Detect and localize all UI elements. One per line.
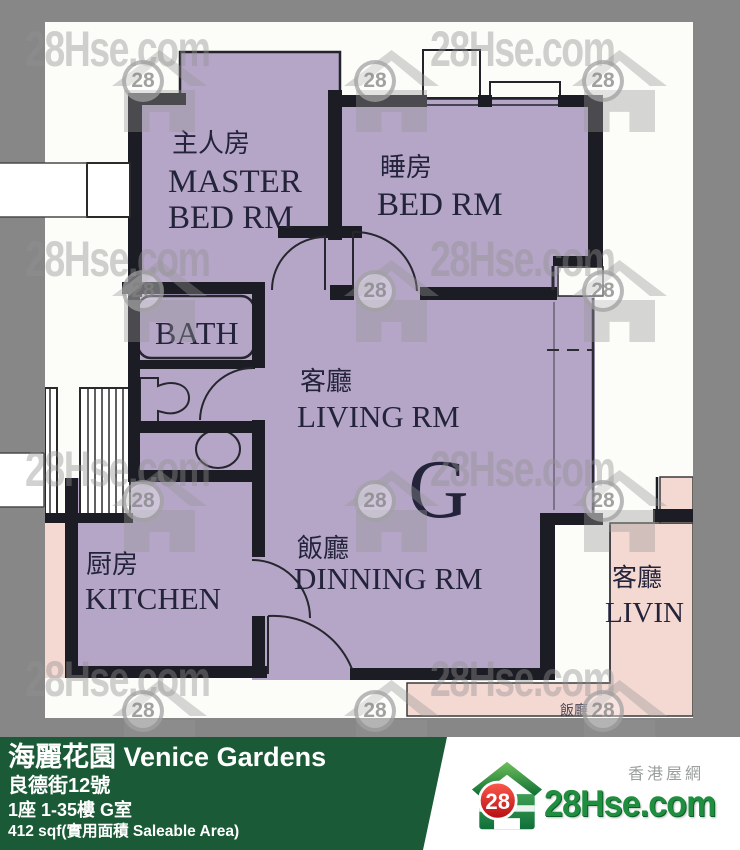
28hse-logo[interactable]: 28 28Hse.com 香港屋網 [468, 757, 740, 847]
bath-label: BATH [155, 315, 239, 351]
master-bedroom-label-zh: 主人房 [172, 129, 250, 158]
unit-letter: G [408, 443, 469, 536]
bedroom-label-en: BED RM [377, 187, 503, 223]
property-info-panel: 海麗花園 Venice Gardens 良德街12號 1座 1-35樓 G室 4… [0, 737, 460, 850]
bedroom-label-zh: 睡房 [380, 153, 432, 182]
estate-address: 良德街12號 [8, 773, 460, 799]
master-bedroom-label-en1: MASTER [168, 164, 302, 200]
floor-plan-page: 主人房 MASTER BED RM 睡房 BED RM BATH 客廳 LIVI… [0, 0, 740, 850]
logo-site-name: 28Hse.com [544, 783, 715, 825]
estate-block-floor-unit: 1座 1-35樓 G室 [8, 799, 460, 822]
logo-tagline: 香港屋網 [628, 760, 704, 784]
master-bedroom-label-en2: BED RM [168, 200, 294, 236]
adjacent-living-label-en: LIVIN [605, 597, 684, 629]
kitchen-label-zh: 厨房 [86, 550, 138, 579]
logo-badge: 28 [485, 789, 510, 814]
adjacent-unit-left [45, 522, 65, 678]
living-room-label-zh: 客廳 [300, 367, 352, 396]
estate-saleable-area: 412 sqf(實用面積 Saleable Area) [8, 822, 460, 842]
adjacent-dining-label-zh: 飯廳 [560, 702, 588, 719]
staircase [45, 388, 130, 516]
dining-room-label-zh: 飯廳 [297, 534, 349, 563]
living-room-label-en: LIVING RM [297, 399, 460, 434]
dining-room-label-en: DINNING RM [294, 561, 483, 596]
estate-title: 海麗花園 Venice Gardens [8, 742, 460, 773]
kitchen-label-en: KITCHEN [85, 581, 221, 616]
floor-plan: 主人房 MASTER BED RM 睡房 BED RM BATH 客廳 LIVI… [0, 0, 740, 850]
adjacent-living-label-zh: 客廳 [612, 564, 662, 592]
logo-house-icon: 28 [470, 760, 544, 832]
